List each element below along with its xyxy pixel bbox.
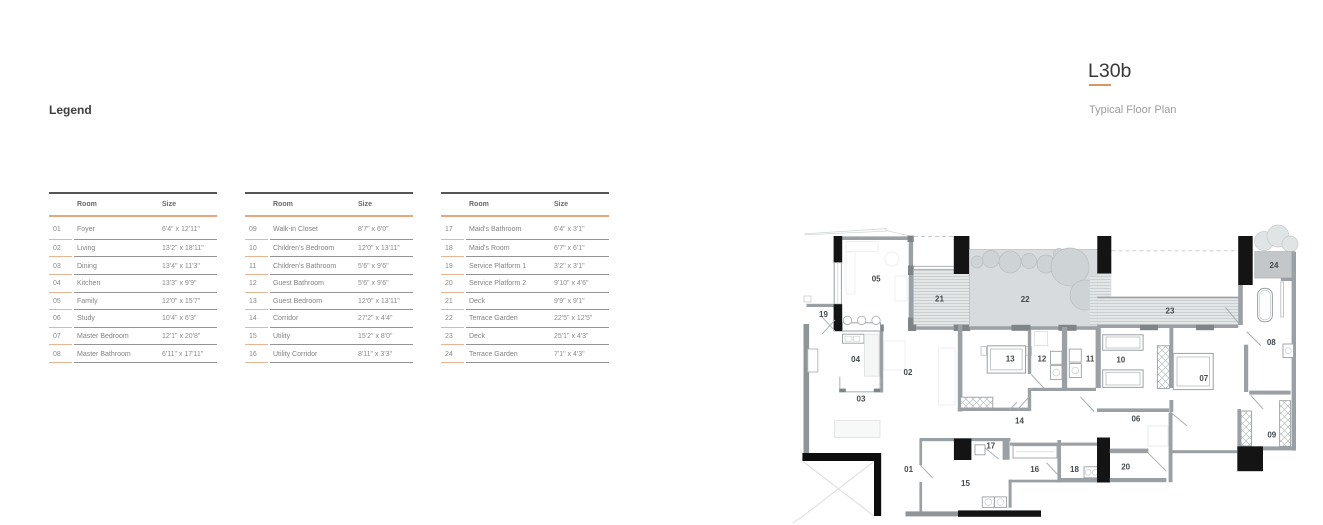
svg-text:23: 23 bbox=[1166, 306, 1175, 315]
svg-text:21: 21 bbox=[935, 295, 944, 304]
svg-text:17: 17 bbox=[986, 442, 995, 451]
svg-text:18: 18 bbox=[1070, 465, 1079, 474]
svg-text:22: 22 bbox=[1021, 295, 1030, 304]
svg-text:09: 09 bbox=[1267, 430, 1276, 439]
svg-text:01: 01 bbox=[904, 465, 913, 474]
svg-text:20: 20 bbox=[1121, 463, 1130, 472]
svg-text:10: 10 bbox=[1116, 355, 1125, 364]
svg-text:14: 14 bbox=[1015, 417, 1024, 426]
svg-text:08: 08 bbox=[1267, 338, 1276, 347]
svg-text:24: 24 bbox=[1270, 261, 1279, 270]
svg-text:02: 02 bbox=[904, 368, 913, 377]
svg-text:15: 15 bbox=[961, 479, 970, 488]
svg-text:16: 16 bbox=[1030, 465, 1039, 474]
svg-text:03: 03 bbox=[857, 395, 866, 404]
svg-text:11: 11 bbox=[1086, 355, 1095, 364]
svg-text:07: 07 bbox=[1199, 374, 1208, 383]
svg-text:05: 05 bbox=[872, 275, 881, 284]
svg-text:06: 06 bbox=[1131, 414, 1140, 423]
svg-text:04: 04 bbox=[851, 355, 860, 364]
svg-text:13: 13 bbox=[1006, 355, 1015, 364]
svg-text:12: 12 bbox=[1037, 355, 1046, 364]
svg-text:19: 19 bbox=[819, 310, 828, 319]
